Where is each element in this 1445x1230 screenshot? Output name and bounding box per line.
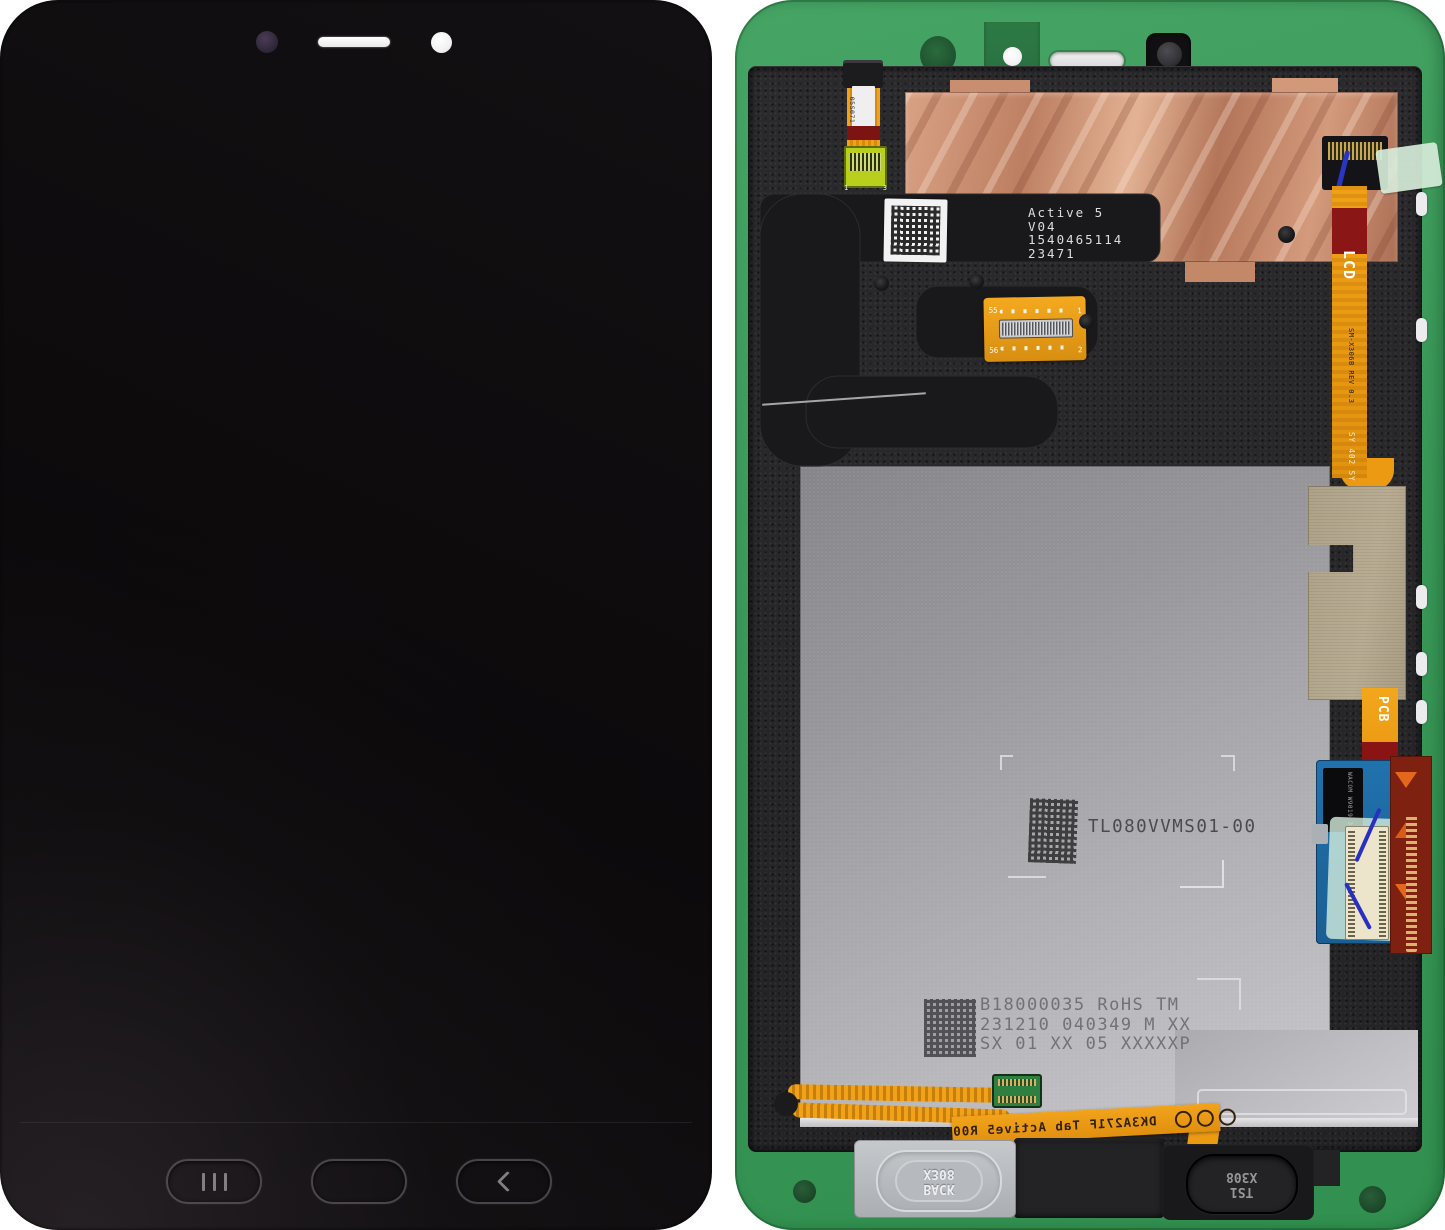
engraving-line: BACK (923, 1181, 954, 1196)
connector-pins (1002, 321, 1070, 335)
ts1-key-button[interactable]: TS1 X308 (1186, 1154, 1298, 1214)
home-hardware-button[interactable] (311, 1159, 407, 1204)
bottom-flex-connector (992, 1074, 1042, 1108)
flex-label-line: 23471 (1028, 247, 1188, 261)
earpiece-speaker-slot (318, 37, 390, 47)
back-hardware-button[interactable] (456, 1159, 552, 1204)
plate-part-number: TL080VVMS01-00 (1088, 817, 1257, 837)
bottom-flex-loop-end (774, 1092, 798, 1116)
plate-serial-label: B18000035 RoHS TM 231210 040349 M XX SX … (980, 996, 1191, 1055)
connector-pins (850, 153, 881, 171)
frame-clip-tab (1416, 700, 1427, 724)
flex-label-line: V04 (1028, 220, 1188, 234)
product-photo: Active 5 V04 1540465114 23471 05S071 1 3… (0, 0, 1445, 1230)
mint-tape (1375, 142, 1443, 194)
lcd-model-label: SM-X306B REV 0.3 (1347, 328, 1355, 403)
engraving-line: X308 (1226, 1169, 1257, 1184)
screw-hole (969, 274, 984, 289)
flex-pattern (1395, 772, 1417, 788)
connector-pins (998, 1096, 1036, 1103)
etched-corner-mark (1008, 876, 1046, 878)
engraving-line: X308 (923, 1166, 954, 1181)
frame-clip-tab (1416, 585, 1427, 609)
chip-label-line: W9019 (1346, 797, 1353, 818)
chip-label-line: WACOM (1346, 772, 1353, 793)
fiducial-dots (1000, 308, 1070, 313)
pin-number: 1 (844, 184, 848, 192)
certification-mark-icons (1174, 1108, 1236, 1128)
bottom-flex-label: DK3A271F Tab Active5 R00 (952, 1112, 1167, 1138)
module-step (1314, 1150, 1340, 1186)
back-key-engraving: BACK X308 (923, 1166, 954, 1196)
etched-corner-mark (1000, 755, 1013, 770)
left-flex-yellow-connector (844, 146, 887, 188)
bezel-seam-line (20, 1122, 692, 1123)
screw-hole (874, 276, 889, 291)
fiducial-dots (1000, 345, 1070, 350)
light-sensor-dot (431, 32, 452, 53)
back-chevron-icon (496, 1171, 517, 1192)
flex-label-line: 1540465114 (1028, 233, 1188, 247)
etched-corner-mark (1197, 978, 1241, 1010)
pin-number: 56 (989, 346, 998, 355)
ts1-key-module: TS1 X308 (1162, 1144, 1314, 1220)
connector-pins (1348, 829, 1355, 937)
left-flex-label-text: 05S071 (848, 97, 856, 123)
etched-corner-mark (1221, 755, 1235, 771)
datamatrix-code-icon (924, 999, 976, 1057)
tablet-front-view (0, 0, 712, 1230)
pcb-band-label: PCB (1375, 696, 1390, 722)
left-flex-stiffener (847, 126, 880, 140)
khaki-antenna-sticker (1308, 486, 1406, 700)
small-board-connector (1312, 824, 1328, 844)
back-key-module: BACK X308 (854, 1140, 1016, 1218)
engraving-line: TS1 (1226, 1184, 1257, 1199)
recents-icon (202, 1173, 227, 1191)
frame-clip-tab (1416, 652, 1427, 676)
serial-line: SX 01 XX 05 XXXXXP (980, 1035, 1191, 1055)
pin-number: 2 (1078, 345, 1083, 354)
frame-clip-tab (1416, 192, 1427, 216)
pin-number: 3 (883, 184, 887, 192)
qr-code-icon (891, 206, 941, 256)
qr-code-label (883, 198, 947, 262)
front-camera-icon (256, 31, 278, 53)
connector-pins (998, 1079, 1036, 1086)
screw-hole (1079, 314, 1094, 329)
back-key-button[interactable]: BACK X308 (895, 1160, 983, 1202)
key-emboss-outline: BACK X308 (876, 1150, 1002, 1212)
gold-contact-fingers (1406, 816, 1417, 952)
connector-pins (1379, 829, 1386, 937)
ts1-key-engraving: TS1 X308 (1226, 1169, 1257, 1199)
etched-corner-mark (1180, 860, 1224, 888)
board-connector (999, 318, 1073, 338)
flex-label-line: Active 5 (1028, 206, 1188, 220)
lcd-band-label: LCD (1340, 250, 1358, 280)
screw-hole (1278, 226, 1295, 243)
screw-hole (1003, 47, 1022, 66)
recents-hardware-button[interactable] (166, 1159, 262, 1204)
frame-clip-tab (1416, 318, 1427, 342)
left-flex-connector (843, 60, 883, 88)
datamatrix-code-icon (1028, 798, 1078, 864)
bottom-black-module (1014, 1138, 1164, 1218)
frame-hole (1359, 1186, 1386, 1213)
frame-hole (793, 1180, 816, 1203)
left-flex-pin-numbers: 1 3 (844, 184, 887, 192)
fpc-connector-pad: 55 1 56 2 (983, 296, 1086, 362)
lcd-flex-stiffener (1332, 208, 1367, 254)
serial-line: 231210 040349 M XX (980, 1016, 1191, 1036)
flex-part-label: Active 5 V04 1540465114 23471 (1028, 206, 1188, 260)
pin-number: 1 (1077, 306, 1082, 315)
connector-pins (1328, 142, 1382, 160)
serial-line: B18000035 RoHS TM (980, 996, 1191, 1016)
camera-lens (1157, 42, 1182, 67)
pin-number: 55 (989, 306, 998, 315)
